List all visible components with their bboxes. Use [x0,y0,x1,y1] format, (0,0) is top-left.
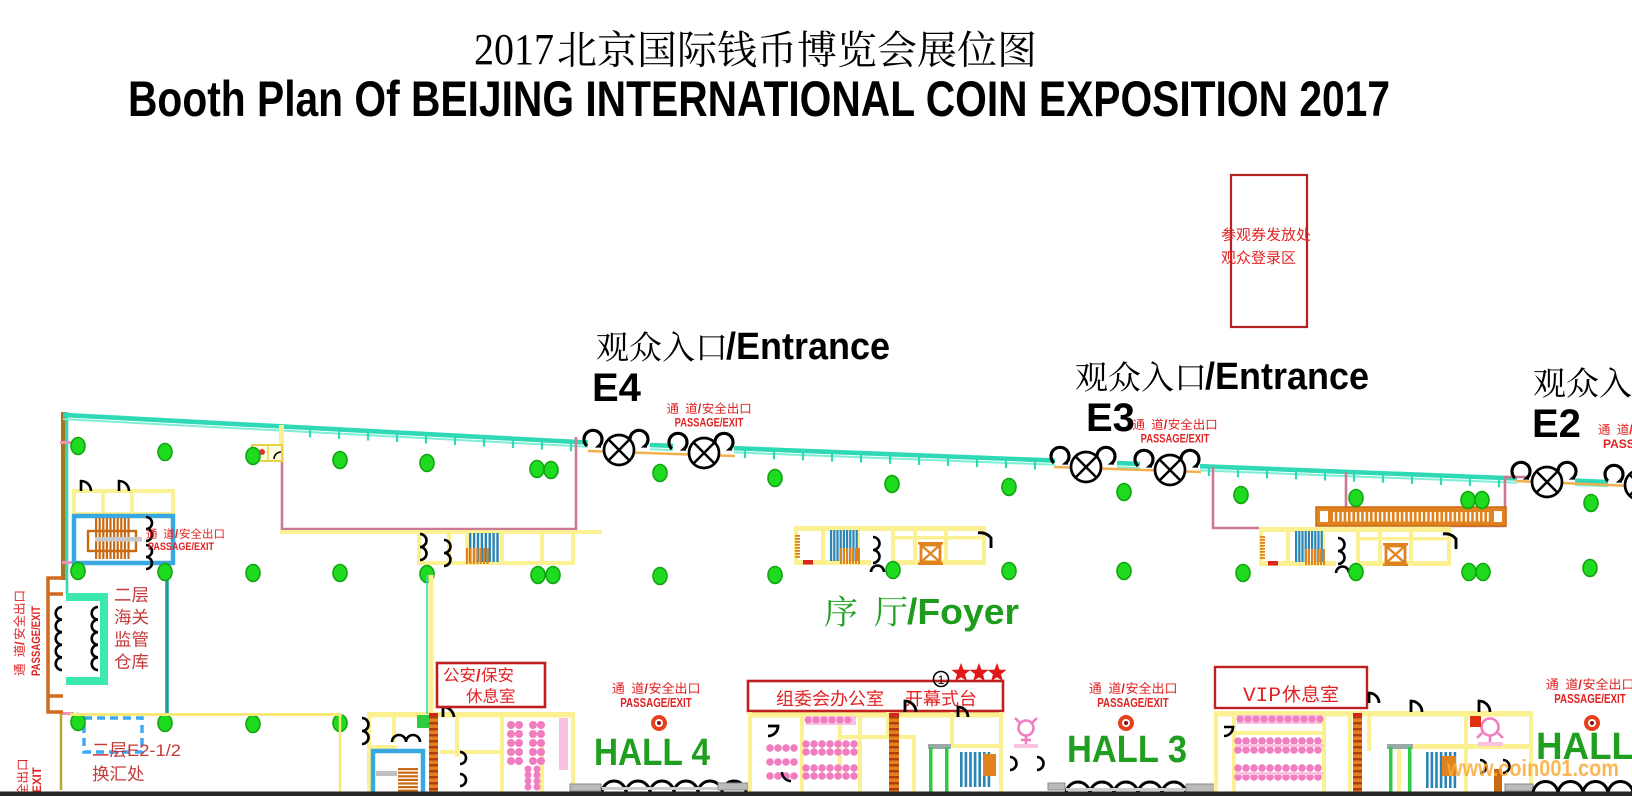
svg-text:/: / [644,681,648,696]
svg-text:/: / [1164,418,1168,432]
svg-text:PASSA: PASSA [1603,437,1632,451]
svg-text:/Foyer: /Foyer [907,591,1019,632]
svg-text:/Entrance: /Entrance [1205,356,1369,398]
svg-text:/: / [1578,677,1582,692]
svg-text:/: / [1121,681,1125,696]
svg-text:PASSAGE/EXIT: PASSAGE/EXIT [675,416,744,430]
svg-text:E2-1/2: E2-1/2 [127,741,181,760]
svg-text:/: / [698,402,702,416]
svg-text:/: / [476,667,481,685]
svg-text:HALL 3: HALL 3 [1067,729,1187,771]
svg-text:Booth Plan Of BEIJING INTERNAT: Booth Plan Of BEIJING INTERNATIONAL COIN… [128,71,1390,127]
svg-text:E4: E4 [592,366,642,410]
svg-text:/Entrance: /Entrance [726,326,890,368]
svg-text:1: 1 [938,673,945,687]
svg-text:PASSAGE/EXIT: PASSAGE/EXIT [1097,696,1169,710]
svg-text:HALL 4: HALL 4 [594,732,710,774]
svg-text:PASSAGE/EXIT: PASSAGE/EXIT [620,696,692,710]
svg-text:PASSAGE/EXIT: PASSAGE/EXIT [148,541,214,553]
svg-text:/: / [13,641,27,645]
svg-text:2017: 2017 [474,25,554,74]
svg-text:E3: E3 [1086,396,1135,440]
svg-text:E2: E2 [1532,402,1581,446]
svg-text:VIP: VIP [1243,685,1281,708]
svg-text:PASSAGE/EXIT: PASSAGE/EXIT [31,606,43,676]
svg-text:www.coin001.com: www.coin001.com [1446,755,1619,781]
svg-text:PASSAGE/EXIT: PASSAGE/EXIT [1554,692,1626,706]
svg-text:PASSAGE/EXIT: PASSAGE/EXIT [1141,432,1210,446]
